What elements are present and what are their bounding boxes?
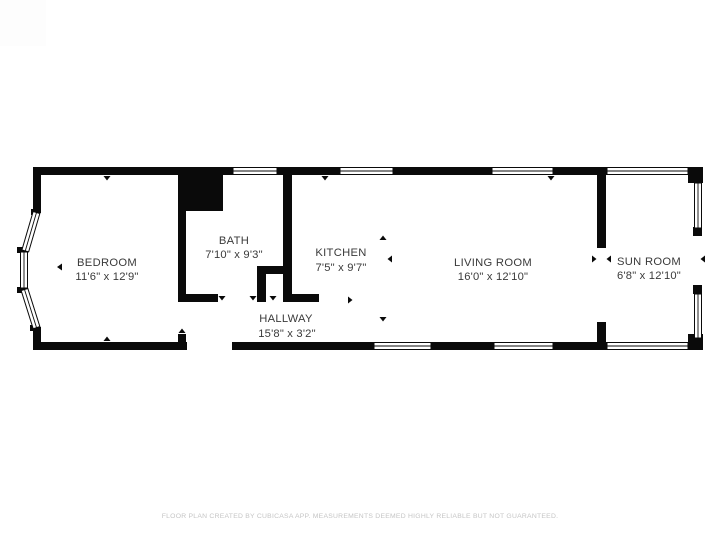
door-arrow-sunroom-entry-icon [701, 256, 706, 263]
floor-plan-canvas: BEDROOM 11'6" x 12'9" BATH 7'10" x 9'3" … [0, 0, 720, 540]
window-bay-middle-icon [21, 252, 28, 288]
room-name: LIVING ROOM [454, 257, 532, 269]
wall-bottom-hallway [232, 342, 374, 350]
room-label-bath: BATH 7'10" x 9'3" [205, 235, 263, 261]
wall-bedroom-door-jamb [178, 334, 186, 344]
wall-bottom-living-left [431, 342, 494, 350]
room-label-bedroom: BEDROOM 11'6" x 12'9" [75, 257, 138, 283]
room-name: BATH [219, 235, 249, 247]
room-dims: 6'8" x 12'10" [617, 270, 681, 282]
window-sunroom-right-upper-icon [695, 183, 702, 228]
wall-nook-left [257, 266, 266, 302]
room-dims: 7'10" x 9'3" [205, 249, 263, 261]
corner-tint [0, 0, 46, 46]
room-dims: 15'8" x 3'2" [258, 328, 316, 340]
wall-kitchen-bottom [283, 294, 319, 302]
door-arrow-living-sunroom-icon [592, 256, 597, 263]
window-bay-lower-icon [21, 288, 40, 328]
footer-disclaimer: FLOOR PLAN CREATED BY CUBICASA APP. MEAS… [0, 513, 720, 520]
room-name: BEDROOM [77, 257, 137, 269]
marker-icon [322, 176, 329, 181]
room-name: HALLWAY [259, 313, 313, 325]
room-dims: 16'0" x 12'10" [458, 271, 528, 283]
window-living-top-icon [492, 168, 553, 175]
window-kitchen-top-icon [340, 168, 393, 175]
door-arrow-hallway-icon [348, 297, 353, 304]
door-arrow-bath-icon [219, 296, 226, 301]
door-arrow-bedroom-icon [179, 329, 186, 334]
window-bath-top-icon [233, 168, 277, 175]
marker-icon [388, 256, 393, 263]
room-labels: BEDROOM 11'6" x 12'9" BATH 7'10" x 9'3" … [75, 235, 681, 340]
marker-icon [380, 317, 387, 322]
room-dims: 7'5" x 9'7" [315, 262, 366, 274]
wall-bottom-bedroom [33, 342, 187, 350]
marker-icon [57, 264, 62, 271]
marker-icon [548, 176, 555, 181]
marker-icon [104, 176, 111, 181]
room-label-kitchen: KITCHEN 7'5" x 9'7" [315, 247, 366, 274]
window-sunroom-bottom-icon [607, 343, 688, 350]
room-name: SUN ROOM [617, 256, 681, 268]
marker-icon [104, 337, 111, 342]
room-dims: 11'6" x 12'9" [75, 271, 138, 283]
window-sunroom-top-icon [607, 168, 688, 175]
wall-living-sunroom-lower [597, 322, 606, 350]
window-bay-upper-icon [22, 212, 40, 252]
door-arrow-living-sunroom-icon [607, 256, 612, 263]
door-arrow-nook-icon [270, 296, 277, 301]
wall-left-upper [33, 167, 41, 213]
marker-icon [380, 236, 387, 241]
window-hallway-bottom-icon [374, 343, 431, 350]
room-label-sun-room: SUN ROOM 6'8" x 12'10" [617, 256, 681, 282]
window-living-bottom-icon [494, 343, 553, 350]
door-markers [57, 176, 705, 341]
wall-cap [693, 285, 702, 294]
room-label-hallway: HALLWAY 15'8" x 3'2" [258, 313, 316, 340]
room-name: KITCHEN [315, 247, 366, 259]
room-label-living-room: LIVING ROOM 16'0" x 12'10" [454, 257, 532, 283]
floor-plan-page: BEDROOM 11'6" x 12'9" BATH 7'10" x 9'3" … [0, 0, 720, 540]
window-sunroom-right-lower-icon [695, 294, 702, 338]
wall-living-sunroom-upper [597, 167, 606, 248]
wall-solid-block-bath [178, 167, 223, 211]
wall-top-living-left [393, 167, 492, 175]
wall-bath-kitchen-divider [283, 167, 292, 302]
door-arrow-bath-icon [250, 296, 257, 301]
wall-corner-top-right [688, 167, 703, 183]
